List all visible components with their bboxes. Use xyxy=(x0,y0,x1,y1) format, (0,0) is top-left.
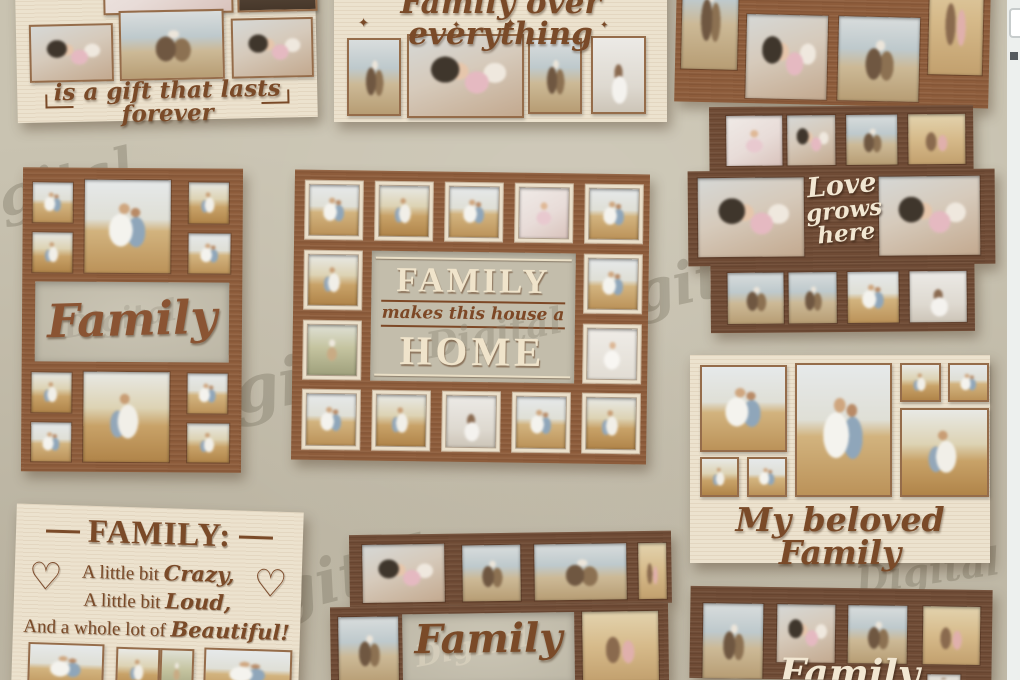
caption-text: And a whole lot of xyxy=(23,616,171,642)
photo xyxy=(927,674,960,680)
matted-photo xyxy=(303,250,363,311)
matted-photo xyxy=(514,183,574,244)
photo xyxy=(203,647,292,680)
photo xyxy=(31,422,71,461)
photo xyxy=(309,185,359,236)
photo xyxy=(27,642,104,680)
caption-panel: Digital Family xyxy=(35,281,230,362)
matted-photo xyxy=(441,391,501,453)
photo xyxy=(788,272,836,323)
matted-photo xyxy=(302,320,362,381)
matted-photo xyxy=(304,180,364,241)
caption-family-bottom: Family xyxy=(402,618,575,660)
photo xyxy=(589,189,639,240)
photo xyxy=(700,365,787,452)
caption-script-word: Loud, xyxy=(165,588,232,615)
photo xyxy=(534,543,627,600)
photo-frame-family-right: Family xyxy=(689,586,992,680)
photo xyxy=(837,16,920,102)
photo xyxy=(446,396,496,448)
matted-photo xyxy=(511,392,571,454)
matted-photo xyxy=(583,254,643,315)
photo xyxy=(923,606,981,665)
caption-gift: is a gift that lasts forever xyxy=(17,76,318,128)
matted-photo xyxy=(374,181,434,242)
sparkle-icon: ✦ xyxy=(504,15,517,33)
photo xyxy=(306,394,356,446)
photo xyxy=(787,115,835,165)
photo xyxy=(516,397,566,449)
page-edge-card xyxy=(1009,8,1020,38)
sparkle-icon: ✦ xyxy=(600,20,608,31)
caption-home-line2: makes this house a xyxy=(382,304,565,324)
caption-text: A little bit xyxy=(83,590,165,614)
photo xyxy=(379,186,429,237)
caption-family-right: Family xyxy=(774,653,925,680)
photo xyxy=(700,457,739,497)
photo xyxy=(462,545,521,602)
caption-definition-title: FAMILY: xyxy=(15,512,303,558)
caption-text: A little bit xyxy=(82,562,164,586)
photo xyxy=(586,398,636,450)
photo xyxy=(33,182,73,222)
photo xyxy=(681,0,740,70)
photo xyxy=(588,259,638,310)
caption-over-everything: Family over everything xyxy=(334,0,667,50)
photo xyxy=(795,363,892,497)
photo xyxy=(188,233,230,273)
matted-photo xyxy=(581,393,641,455)
caption-home-line3: HOME xyxy=(399,330,545,373)
caption-home-line1: FAMILY xyxy=(396,261,551,298)
page-edge-panel xyxy=(1007,0,1020,680)
photo-frame-beloved: My beloved Family xyxy=(690,355,990,563)
photo xyxy=(159,648,194,680)
photo xyxy=(909,271,966,322)
photo xyxy=(900,408,989,497)
photo xyxy=(449,187,499,238)
photo xyxy=(582,611,659,680)
photo-frame-gift: is a gift that lasts forever xyxy=(14,0,318,123)
photo xyxy=(948,363,989,402)
photo xyxy=(119,9,225,81)
sparkle-icon: ✦ xyxy=(358,16,369,31)
matted-photo xyxy=(582,324,642,385)
photo xyxy=(115,647,160,680)
caption-script-word: Beautiful! xyxy=(170,616,290,645)
matted-photo xyxy=(371,390,431,452)
photo-frame-family-left: Digital Family xyxy=(21,167,243,473)
wall-background: Digital Digital Digital Digital Digital … xyxy=(0,0,1020,680)
photo xyxy=(236,0,318,12)
photo xyxy=(29,23,114,83)
caption-script-word: Crazy, xyxy=(163,560,235,587)
photo xyxy=(519,188,569,239)
photo xyxy=(702,603,763,679)
photo xyxy=(745,14,828,100)
caption-beloved: My beloved Family xyxy=(690,503,990,569)
photo xyxy=(31,372,71,412)
photo xyxy=(587,329,637,380)
photo xyxy=(900,363,941,402)
photo xyxy=(376,395,426,447)
photo xyxy=(362,544,445,603)
photo-frame-top-right xyxy=(674,0,992,109)
sparkle-icon: ✦ xyxy=(452,20,460,31)
photo xyxy=(308,255,358,306)
photo-frame-family-bottom: Digital Family xyxy=(329,531,676,680)
caption-home-panel: Digital FAMILY makes this house a HOME xyxy=(370,251,576,384)
photo-frame-definition: FAMILY: ♡ ♡ A little bit Crazy, A little… xyxy=(11,504,304,680)
caption-family-left: Family xyxy=(35,293,230,344)
photo-frame-home: Digital FAMILY makes this house a HOME xyxy=(291,170,650,465)
photo xyxy=(187,373,227,413)
photo xyxy=(189,182,229,223)
photo xyxy=(638,543,667,599)
photo xyxy=(84,180,171,274)
photo xyxy=(32,232,72,272)
photo xyxy=(928,0,985,75)
matted-photo xyxy=(584,184,644,245)
matted-photo xyxy=(301,389,361,451)
photo xyxy=(908,114,965,164)
caption-love-grows: Love grows here xyxy=(795,168,894,249)
photo xyxy=(231,17,314,79)
caption-panel: Digital Family xyxy=(402,612,575,680)
photo xyxy=(307,325,357,376)
photo xyxy=(726,116,782,166)
photo-frame-love-grows: Love grows here xyxy=(687,105,996,334)
photo xyxy=(846,115,897,165)
matted-photo xyxy=(444,182,504,243)
photo xyxy=(83,372,170,463)
page-edge-marker xyxy=(1010,52,1018,60)
photo-frame-over-everything: Family over everything ✦ ✦ ✦ ✦ xyxy=(334,0,667,122)
photo xyxy=(747,457,787,497)
photo xyxy=(847,272,898,323)
photo xyxy=(698,177,805,257)
photo xyxy=(187,423,229,462)
photo xyxy=(727,273,783,324)
photo xyxy=(879,176,981,256)
photo xyxy=(338,616,399,680)
